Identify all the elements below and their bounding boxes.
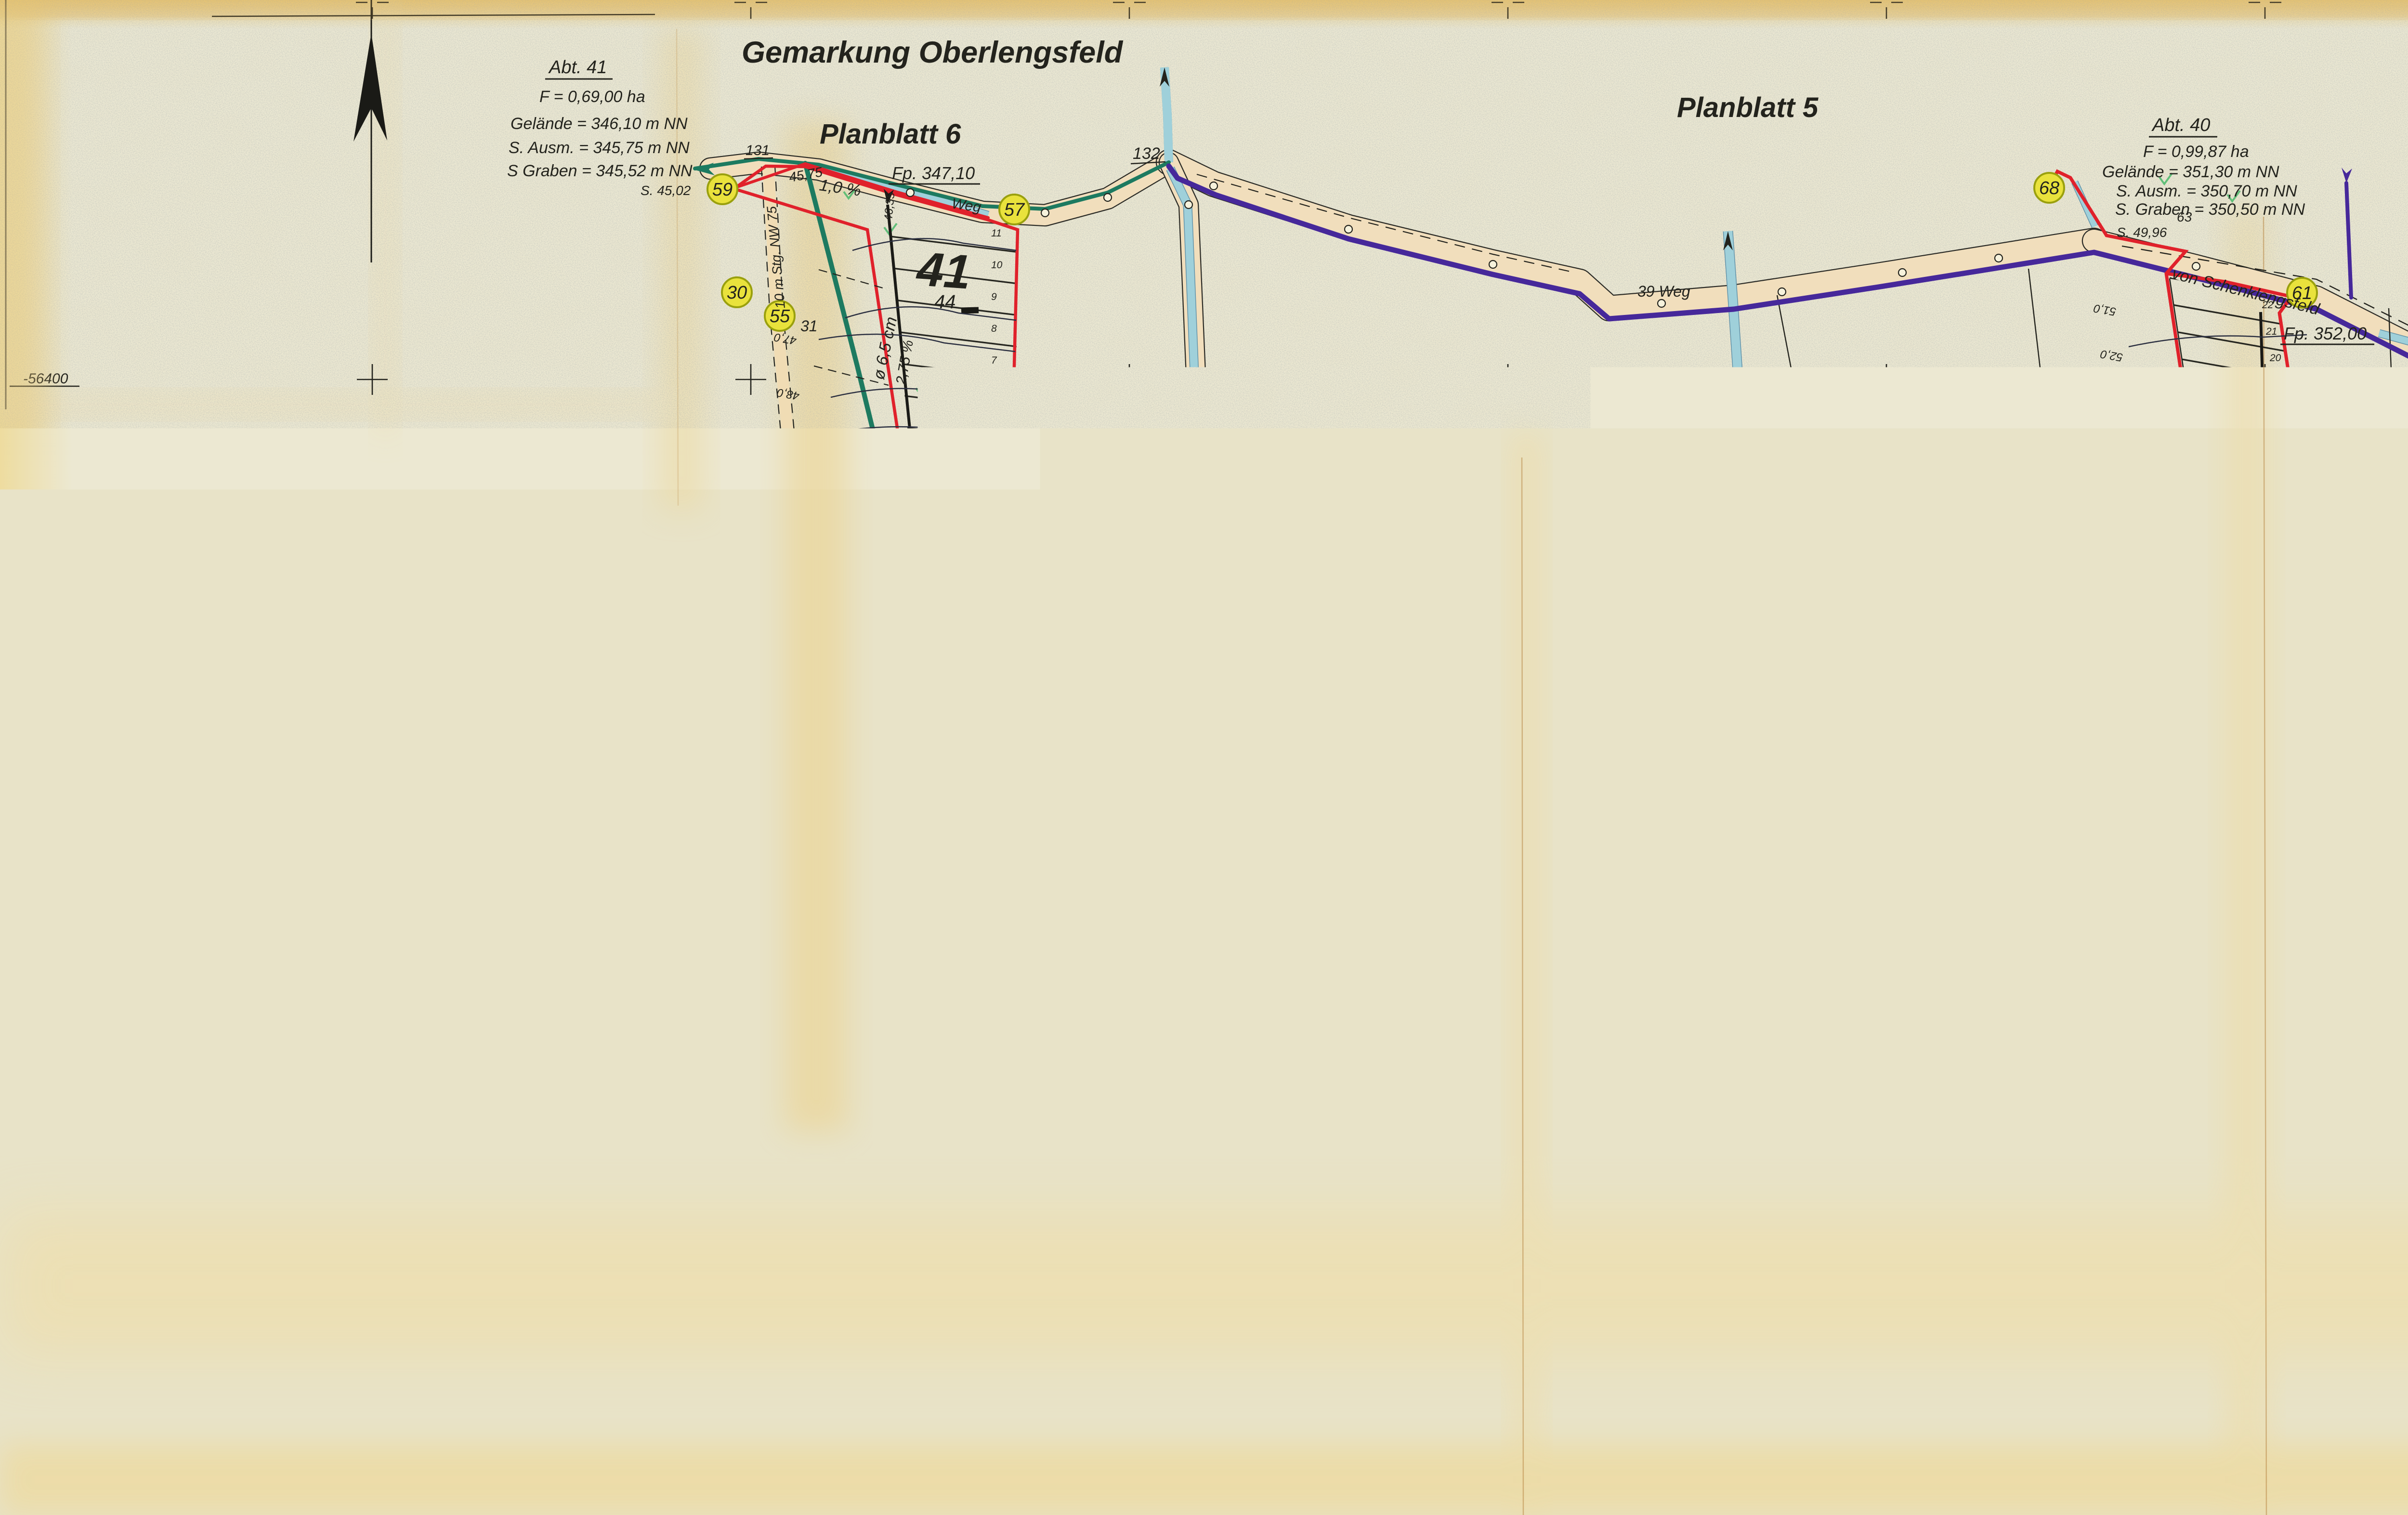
svg-text:51: 51 xyxy=(2046,1139,2063,1157)
svg-text:2: 2 xyxy=(2334,829,2340,840)
svg-text:weg: weg xyxy=(1219,874,1236,901)
svg-text:5: 5 xyxy=(991,418,997,430)
svg-text:S. Graben = 350,50 m NN: S. Graben = 350,50 m NN xyxy=(2115,200,2305,219)
svg-text:131: 131 xyxy=(746,143,770,158)
svg-text:-56850: -56850 xyxy=(23,1500,68,1515)
svg-text:20: 20 xyxy=(2269,353,2281,364)
svg-text:Gelände = 351,30 m NN: Gelände = 351,30 m NN xyxy=(2102,163,2279,181)
svg-text:41: 41 xyxy=(914,242,972,300)
svg-text:132: 132 xyxy=(1133,144,1160,163)
svg-text:44: 44 xyxy=(934,291,956,313)
svg-text:21: 21 xyxy=(2265,326,2277,337)
svg-text:40: 40 xyxy=(2213,451,2275,512)
svg-text:3: 3 xyxy=(991,482,997,493)
svg-text:46: 46 xyxy=(2133,1419,2151,1436)
svg-text:33: 33 xyxy=(2372,1481,2389,1499)
svg-text:-56550: -56550 xyxy=(23,736,68,752)
svg-text:11: 11 xyxy=(991,228,1002,239)
svg-text:67: 67 xyxy=(836,649,851,664)
svg-text:135: 135 xyxy=(867,1286,894,1304)
svg-text:a: a xyxy=(917,385,927,404)
svg-text:10: 10 xyxy=(2261,570,2281,590)
svg-text:Weg: Weg xyxy=(867,1361,898,1378)
svg-text:14: 14 xyxy=(2291,511,2302,522)
svg-text:17: 17 xyxy=(2280,432,2292,443)
svg-text:Gelände = 346,10 m NN: Gelände = 346,10 m NN xyxy=(510,115,688,133)
svg-text:7: 7 xyxy=(991,355,997,366)
svg-text:S. Ausm. = 350,70 m NN: S. Ausm. = 350,70 m NN xyxy=(2116,182,2297,200)
svg-text:34: 34 xyxy=(2317,1332,2335,1349)
svg-text:10: 10 xyxy=(2305,617,2317,628)
svg-text:9: 9 xyxy=(2142,566,2151,584)
svg-text:130: 130 xyxy=(951,717,979,735)
svg-text:Weg: Weg xyxy=(2153,1311,2184,1329)
svg-text:9: 9 xyxy=(2309,644,2315,655)
svg-text:-56700: -56700 xyxy=(23,1117,68,1133)
svg-text:S. 49,96: S. 49,96 xyxy=(2117,225,2167,240)
svg-text:41: 41 xyxy=(864,1424,882,1441)
svg-text:31: 31 xyxy=(800,317,818,335)
svg-text:57: 57 xyxy=(837,666,853,681)
svg-text:5: 5 xyxy=(1453,698,1462,715)
svg-text:Planblatt 6: Planblatt 6 xyxy=(820,118,961,150)
svg-text:50: 50 xyxy=(1805,698,1822,715)
svg-text:12: 12 xyxy=(2299,564,2310,575)
svg-text:Gemarkung Oberlengsfeld: Gemarkung Oberlengsfeld xyxy=(742,36,1124,69)
svg-text:30: 30 xyxy=(727,283,747,303)
svg-text:27: 27 xyxy=(1315,1374,1334,1391)
svg-text:26: 26 xyxy=(1522,1338,1540,1356)
svg-text:6: 6 xyxy=(2320,723,2326,734)
svg-text:S Graben = 345,52 m NN: S Graben = 345,52 m NN xyxy=(507,162,693,180)
svg-text:7: 7 xyxy=(1739,636,1748,653)
svg-text:49: 49 xyxy=(1204,415,1221,432)
svg-text:46,35: 46,35 xyxy=(882,192,897,222)
svg-text:19: 19 xyxy=(2273,379,2285,390)
svg-text:56: 56 xyxy=(784,536,800,552)
svg-text:8: 8 xyxy=(1964,603,1973,621)
svg-text:5: 5 xyxy=(2324,750,2329,761)
svg-text:22: 22 xyxy=(2398,1018,2408,1035)
svg-text:S. Ausm. = 345,75 m NN: S. Ausm. = 345,75 m NN xyxy=(509,139,690,157)
svg-text:42: 42 xyxy=(1555,1308,1572,1325)
svg-text:S. 45,02: S. 45,02 xyxy=(641,183,691,198)
svg-text:2: 2 xyxy=(991,514,997,525)
svg-text:Fp. 347,10: Fp. 347,10 xyxy=(892,163,975,183)
svg-text:4: 4 xyxy=(2328,776,2333,787)
svg-text:10: 10 xyxy=(991,260,1003,271)
svg-text:6: 6 xyxy=(991,387,997,398)
svg-text:49,51: 49,51 xyxy=(903,444,920,477)
svg-text:F = 0,69,00 ha: F = 0,69,00 ha xyxy=(539,88,645,106)
svg-text:F = 0,99,87 ha: F = 0,99,87 ha xyxy=(2143,143,2249,161)
svg-text:160: 160 xyxy=(1998,1222,2024,1239)
svg-text:54: 54 xyxy=(744,451,760,467)
svg-text:7: 7 xyxy=(2316,697,2323,708)
svg-text:59: 59 xyxy=(712,180,733,200)
svg-text:127: 127 xyxy=(986,1094,1014,1112)
svg-text:Weg: Weg xyxy=(2073,953,2105,970)
svg-text:474: 474 xyxy=(712,1115,737,1132)
svg-text:1: 1 xyxy=(2338,856,2344,867)
svg-text:39 Weg: 39 Weg xyxy=(1637,283,1690,300)
svg-text:1: 1 xyxy=(1454,714,1463,731)
svg-text:1: 1 xyxy=(941,423,951,444)
svg-text:63: 63 xyxy=(2177,209,2192,224)
svg-text:23: 23 xyxy=(2311,1049,2329,1067)
svg-text:4: 4 xyxy=(991,450,997,461)
svg-text:8: 8 xyxy=(991,323,997,334)
svg-text:30: 30 xyxy=(837,1192,854,1210)
svg-text:Planblatt 5: Planblatt 5 xyxy=(1677,92,1819,123)
svg-text:1: 1 xyxy=(991,546,997,557)
svg-text:13: 13 xyxy=(2295,538,2306,549)
svg-text:40: 40 xyxy=(2045,961,2065,981)
svg-text:36: 36 xyxy=(1098,791,1115,809)
svg-text:43: 43 xyxy=(2242,519,2261,538)
svg-text:Planblatt 2: Planblatt 2 xyxy=(488,1218,634,1250)
svg-text:29: 29 xyxy=(935,1383,953,1400)
svg-text:18: 18 xyxy=(2277,405,2288,417)
svg-text:9: 9 xyxy=(991,291,997,302)
svg-text:11: 11 xyxy=(2302,591,2313,602)
svg-text:Abt. 41: Abt. 41 xyxy=(548,57,607,78)
svg-text:1: 1 xyxy=(1209,434,1217,451)
svg-text:16: 16 xyxy=(2284,458,2296,470)
svg-text:Fp. 352,00: Fp. 352,00 xyxy=(2284,324,2367,343)
svg-text:68: 68 xyxy=(2039,178,2059,198)
svg-text:52: 52 xyxy=(2244,1168,2262,1186)
svg-text:24: 24 xyxy=(2150,1108,2168,1125)
svg-text:38: 38 xyxy=(1223,695,1241,712)
svg-text:57: 57 xyxy=(1004,200,1025,220)
svg-text:-56400: -56400 xyxy=(23,371,68,387)
svg-text:129: 129 xyxy=(1160,959,1187,978)
svg-text:128: 128 xyxy=(1391,1383,1418,1401)
svg-text:3: 3 xyxy=(2331,803,2337,814)
svg-text:Das Unterfeld: Das Unterfeld xyxy=(1736,672,1899,700)
svg-text:32: 32 xyxy=(844,497,861,515)
svg-text:Abt. 40: Abt. 40 xyxy=(2151,115,2210,135)
svg-text:Gemarkung Schenklengsfeld: Gemarkung Schenklengsfeld xyxy=(408,635,807,667)
svg-text:25: 25 xyxy=(1800,1223,1818,1240)
svg-text:Das Maifeld: Das Maifeld xyxy=(1769,1319,1920,1349)
svg-text:2: 2 xyxy=(1095,463,1104,480)
svg-text:28: 28 xyxy=(1024,1383,1042,1400)
svg-text:15: 15 xyxy=(2288,485,2299,496)
svg-text:Planblatt 13: Planblatt 13 xyxy=(510,704,667,735)
svg-text:8: 8 xyxy=(2313,670,2319,681)
svg-text:11: 11 xyxy=(2340,566,2356,584)
